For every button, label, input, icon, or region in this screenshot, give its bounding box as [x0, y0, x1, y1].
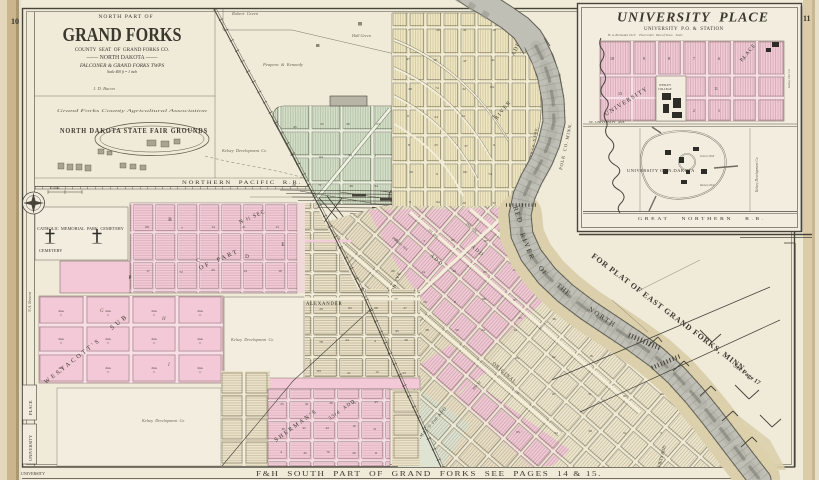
- svg-text:28: 28: [408, 87, 412, 91]
- svg-text:10: 10: [610, 56, 614, 61]
- svg-text:25: 25: [211, 268, 215, 272]
- svg-text:45: 45: [293, 125, 297, 129]
- svg-text:45: 45: [302, 426, 306, 430]
- svg-text:56: 56: [346, 122, 350, 126]
- svg-text:28: 28: [425, 328, 429, 332]
- svg-text:14: 14: [211, 225, 215, 229]
- svg-text:32: 32: [462, 87, 466, 91]
- svg-text:UNIVERSITY OF N.DAKOTA: UNIVERSITY OF N.DAKOTA: [627, 168, 695, 173]
- svg-text:34: 34: [554, 431, 558, 435]
- svg-text:79: 79: [326, 450, 330, 454]
- svg-text:74: 74: [488, 172, 492, 176]
- svg-text:PLACE: PLACE: [28, 400, 33, 415]
- svg-text:13: 13: [618, 91, 622, 96]
- svg-text:21: 21: [347, 371, 351, 375]
- svg-text:Kelsey Dev Co: Kelsey Dev Co: [787, 69, 791, 89]
- svg-text:17: 17: [146, 269, 150, 273]
- svg-text:C: C: [196, 258, 200, 264]
- svg-text:COUNTY SEAT OF GRAND FORKS: COUNTY SEAT OF GRAND FORKS CO.: [75, 47, 169, 53]
- svg-text:D: D: [245, 254, 249, 260]
- svg-text:67: 67: [552, 392, 556, 396]
- svg-text:47: 47: [406, 57, 410, 61]
- svg-text:NORTHERN PACIFIC R.R.: NORTHERN PACIFIC R.R.: [182, 180, 302, 186]
- svg-text:4¼A: 4¼A: [197, 310, 203, 313]
- svg-text:8: 8: [408, 143, 410, 147]
- svg-text:4¼A: 4¼A: [151, 338, 157, 341]
- svg-text:½ mile: ½ mile: [50, 186, 60, 190]
- svg-text:62: 62: [348, 306, 352, 310]
- svg-text:34: 34: [452, 269, 456, 273]
- svg-text:7: 7: [693, 56, 695, 61]
- svg-text:31: 31: [588, 392, 592, 396]
- svg-text:54: 54: [348, 153, 352, 157]
- svg-text:38: 38: [433, 58, 437, 62]
- svg-text:Kelsey Development Co: Kelsey Development Co: [755, 157, 759, 193]
- svg-text:8: 8: [454, 300, 456, 304]
- svg-text:4¼A: 4¼A: [58, 338, 64, 341]
- svg-text:UNIVERSITY: UNIVERSITY: [28, 434, 33, 461]
- svg-text:FALCONER & GRAND FORKS TWPS: FALCONER & GRAND FORKS TWPS: [79, 63, 165, 69]
- svg-text:49: 49: [349, 184, 353, 188]
- svg-text:Peapera & Kennedy: Peapera & Kennedy: [262, 62, 304, 67]
- svg-text:4¼A: 4¼A: [105, 367, 111, 370]
- svg-text:UNIVERSITY: UNIVERSITY: [21, 471, 45, 476]
- svg-text:I: I: [167, 363, 170, 368]
- svg-text:12: 12: [375, 370, 379, 374]
- svg-text:62: 62: [552, 355, 556, 359]
- svg-text:41: 41: [491, 58, 495, 62]
- svg-text:25: 25: [434, 143, 438, 147]
- svg-text:H. A. Bermudes 1910 Plat C: H. A. Bermudes 1910 Plat Center West of …: [607, 33, 683, 37]
- svg-text:GREAT NORTHERN R.R.: GREAT NORTHERN R.R.: [638, 216, 766, 221]
- svg-text:14: 14: [513, 328, 517, 332]
- svg-text:4¼A: 4¼A: [151, 367, 157, 370]
- svg-text:1: 1: [718, 108, 720, 113]
- svg-text:Kelsey Development Co: Kelsey Development Co: [230, 337, 273, 342]
- svg-text:20: 20: [462, 201, 466, 205]
- svg-text:29: 29: [404, 338, 408, 342]
- svg-text:25: 25: [280, 402, 284, 406]
- svg-text:32: 32: [320, 122, 324, 126]
- svg-text:9: 9: [493, 143, 495, 147]
- svg-text:Hall Green: Hall Green: [351, 33, 371, 38]
- svg-text:NORTH DAKOTA STATE FAIR GROUND: NORTH DAKOTA STATE FAIR GROUNDS: [60, 127, 208, 135]
- svg-text:29: 29: [409, 170, 413, 174]
- svg-text:71: 71: [318, 183, 322, 187]
- svg-text:9: 9: [643, 56, 645, 61]
- svg-text:9: 9: [436, 172, 438, 176]
- svg-text:25: 25: [518, 316, 522, 320]
- svg-text:23: 23: [376, 122, 380, 126]
- svg-text:16: 16: [352, 424, 356, 428]
- svg-text:65: 65: [515, 356, 519, 360]
- svg-text:4: 4: [374, 339, 376, 343]
- svg-text:4¼A: 4¼A: [197, 338, 203, 341]
- svg-text:44: 44: [325, 426, 329, 430]
- svg-text:16: 16: [589, 354, 593, 358]
- svg-text:UNIVERSITY PLACE: UNIVERSITY PLACE: [617, 10, 769, 25]
- svg-text:H: H: [161, 317, 166, 322]
- svg-text:51: 51: [373, 427, 377, 431]
- svg-text:4¼A: 4¼A: [105, 338, 111, 341]
- svg-text:72: 72: [179, 270, 183, 274]
- svg-text:9: 9: [407, 114, 409, 118]
- svg-text:P: P: [129, 275, 132, 281]
- svg-text:30: 30: [281, 427, 285, 431]
- svg-text:44: 44: [345, 338, 349, 342]
- svg-text:10: 10: [278, 269, 282, 273]
- svg-text:77: 77: [394, 297, 398, 301]
- svg-text:39: 39: [588, 429, 592, 433]
- svg-text:7: 7: [408, 28, 410, 32]
- svg-text:34: 34: [374, 184, 378, 188]
- svg-text:37: 37: [492, 201, 496, 205]
- svg-text:COLLEGE: COLLEGE: [658, 87, 672, 91]
- svg-text:4¼A: 4¼A: [151, 310, 157, 313]
- svg-text:Kelsey Development Co: Kelsey Development Co: [221, 148, 267, 153]
- svg-text:CEMETERY: CEMETERY: [39, 248, 63, 253]
- svg-text:43: 43: [402, 371, 406, 375]
- svg-text:2: 2: [693, 108, 695, 113]
- svg-text:8: 8: [668, 56, 670, 61]
- svg-text:F&H SOUTH PART OF GRAND F: F&H SOUTH PART OF GRAND FORKS SEE PAGES …: [256, 471, 602, 478]
- svg-text:45: 45: [303, 451, 307, 455]
- svg-text:NORTH PART OF: NORTH PART OF: [98, 14, 153, 20]
- svg-text:11: 11: [803, 14, 811, 23]
- svg-text:11: 11: [374, 451, 377, 455]
- svg-text:37: 37: [464, 144, 468, 148]
- svg-text:Robert Green: Robert Green: [231, 11, 259, 16]
- svg-text:E: E: [281, 242, 284, 248]
- svg-text:N.A. Browns: N.A. Browns: [27, 291, 32, 313]
- svg-text:63: 63: [317, 369, 321, 373]
- svg-text:28: 28: [292, 183, 296, 187]
- svg-text:65: 65: [451, 238, 455, 242]
- svg-text:69: 69: [145, 225, 149, 229]
- svg-text:Science Hall: Science Hall: [700, 155, 714, 158]
- svg-text:3: 3: [660, 431, 662, 435]
- svg-text:74: 74: [435, 86, 439, 90]
- svg-text:51: 51: [623, 431, 627, 435]
- svg-text:J. D. Bacon: J. D. Bacon: [93, 86, 115, 91]
- svg-text:59: 59: [455, 328, 459, 332]
- svg-text:24: 24: [434, 115, 438, 119]
- svg-text:56: 56: [423, 300, 427, 304]
- svg-text:2: 2: [374, 154, 376, 158]
- svg-text:60: 60: [391, 269, 395, 273]
- svg-text:UNIVERSITY P.O. & STATION: UNIVERSITY P.O. & STATION: [644, 27, 724, 32]
- svg-text:8: 8: [409, 200, 411, 204]
- svg-text:GRAND FORKS: GRAND FORKS: [63, 24, 182, 46]
- svg-text:10: 10: [11, 17, 19, 26]
- svg-text:G: G: [100, 309, 104, 314]
- svg-text:14: 14: [243, 269, 247, 273]
- svg-text:43: 43: [374, 400, 378, 404]
- svg-text:65: 65: [516, 430, 520, 434]
- svg-text:4¼A: 4¼A: [197, 367, 203, 370]
- svg-text:4¼A: 4¼A: [58, 310, 64, 313]
- svg-text:Scale 400 ft = 1 inch: Scale 400 ft = 1 inch: [107, 70, 137, 74]
- svg-text:Grand Forks County Agricultura: Grand Forks County Agricultural Associat…: [57, 108, 208, 113]
- svg-text:65: 65: [483, 270, 487, 274]
- svg-text:29: 29: [436, 28, 440, 32]
- svg-text:—— NORTH DAKOTA ——: —— NORTH DAKOTA ——: [86, 55, 158, 61]
- svg-text:64: 64: [319, 155, 323, 159]
- svg-text:67: 67: [484, 239, 488, 243]
- svg-text:64: 64: [490, 85, 494, 89]
- svg-text:11: 11: [714, 86, 718, 91]
- svg-text:60: 60: [623, 394, 627, 398]
- svg-text:7: 7: [181, 226, 183, 230]
- svg-text:B: B: [168, 217, 172, 223]
- svg-text:67: 67: [513, 298, 517, 302]
- svg-text:29: 29: [329, 401, 333, 405]
- svg-text:21: 21: [242, 225, 246, 229]
- svg-text:13: 13: [275, 225, 279, 229]
- svg-text:3: 3: [423, 239, 425, 243]
- svg-text:Kelsey Development Co: Kelsey Development Co: [141, 418, 184, 423]
- svg-text:6: 6: [718, 56, 720, 61]
- svg-text:4¼A: 4¼A: [105, 310, 111, 313]
- svg-text:9: 9: [517, 391, 519, 395]
- svg-text:41: 41: [463, 28, 467, 32]
- svg-text:66: 66: [482, 297, 486, 301]
- svg-text:Ramsey Hall: Ramsey Hall: [699, 184, 715, 187]
- svg-text:26: 26: [352, 451, 356, 455]
- svg-text:78: 78: [319, 340, 323, 344]
- svg-text:45: 45: [352, 401, 356, 405]
- svg-text:64: 64: [461, 114, 465, 118]
- svg-text:ALEXANDER: ALEXANDER: [306, 302, 343, 307]
- svg-text:47: 47: [463, 59, 467, 63]
- svg-text:14: 14: [421, 270, 425, 274]
- svg-text:47: 47: [403, 306, 407, 310]
- svg-text:36: 36: [552, 317, 556, 321]
- svg-text:68: 68: [374, 306, 378, 310]
- svg-text:12: 12: [491, 114, 495, 118]
- svg-text:64: 64: [436, 200, 440, 204]
- svg-text:20: 20: [319, 307, 323, 311]
- svg-text:61: 61: [305, 402, 309, 406]
- svg-text:17: 17: [394, 238, 398, 242]
- svg-text:66: 66: [463, 170, 467, 174]
- svg-text:45: 45: [395, 329, 399, 333]
- svg-text:10: 10: [492, 28, 496, 32]
- svg-text:24: 24: [481, 328, 485, 332]
